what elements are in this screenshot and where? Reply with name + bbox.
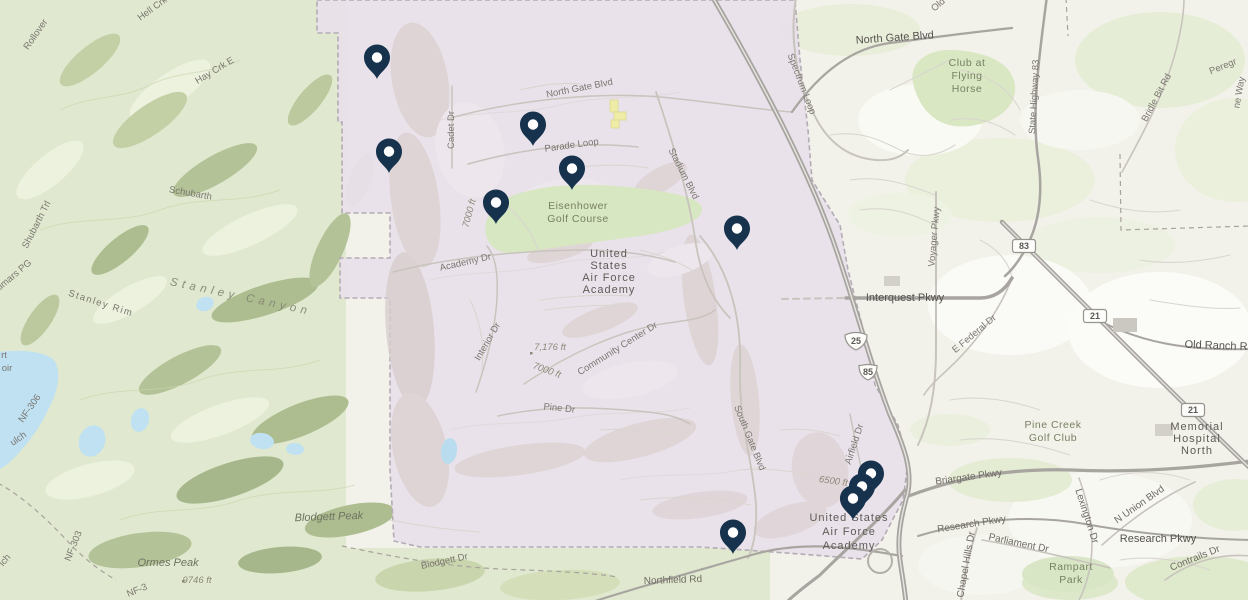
commercial-building — [1113, 318, 1137, 332]
elevation-point — [530, 352, 533, 355]
svg-text:25: 25 — [851, 336, 861, 346]
map-label-eisenhower: EisenhowerGolf Course — [547, 200, 609, 225]
map-label-research-pkwy: Research Pkwy — [1120, 533, 1197, 545]
highway-shield-state-83: 83 — [1013, 240, 1036, 253]
cadet-area-building — [610, 100, 618, 112]
map-label-blodgett-peak: Blodgett Peak — [294, 510, 363, 524]
map-label-cadet-dr: Cadet Dr — [446, 111, 457, 149]
svg-text:85: 85 — [863, 367, 873, 377]
highway-shield-state-21: 21 — [1182, 404, 1205, 417]
map-viewport[interactable]: RolloverHell CrkHay Crk ESchubarthShubar… — [0, 0, 1248, 600]
cadet-area-building — [614, 112, 626, 120]
svg-text:21: 21 — [1090, 311, 1100, 321]
map-label-ormes-peak: Ormes Peak — [137, 557, 199, 569]
map-label-oir: oir — [2, 363, 13, 374]
commercial-building — [884, 276, 900, 286]
map-label-club-at: Club atFlyingHorse — [949, 57, 986, 95]
map-label-7-176-ft: 7,176 ft — [534, 342, 566, 353]
map-label-old-ranch-rd: Old Ranch Rd — [1184, 339, 1248, 353]
map-label-interquest-pkwy: Interquest Pkwy — [866, 292, 945, 304]
map-label-9746-ft: 9746 ft — [182, 575, 211, 586]
map-label-northfield-rd: Northfield Rd — [644, 574, 703, 587]
svg-text:83: 83 — [1019, 241, 1029, 251]
cadet-area-building — [611, 120, 619, 128]
map-label-united: UnitedStatesAir ForceAcademy — [582, 248, 636, 296]
highway-shield-state-21: 21 — [1084, 310, 1107, 323]
map-label-pine-creek: Pine CreekGolf Club — [1025, 419, 1082, 444]
map-label-rt: rt — [1, 350, 7, 361]
map-canvas[interactable]: RolloverHell CrkHay Crk ESchubarthShubar… — [0, 0, 1248, 600]
svg-text:21: 21 — [1188, 405, 1198, 415]
